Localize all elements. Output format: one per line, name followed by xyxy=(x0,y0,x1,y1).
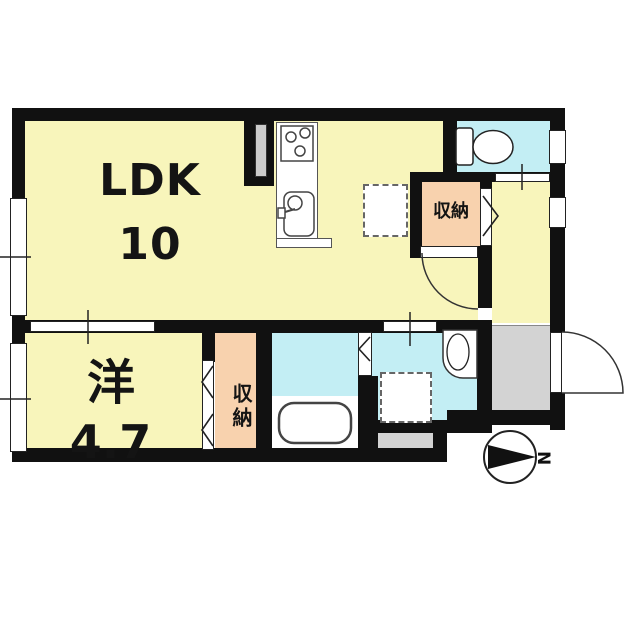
wall-entry-bottom xyxy=(447,410,565,425)
door-toilet-gap xyxy=(495,173,550,182)
bathroom-door xyxy=(358,332,372,376)
storage-bottom-door xyxy=(202,360,214,450)
wall-top xyxy=(12,108,565,121)
storage-bottom-label: 収納 xyxy=(223,357,251,457)
storage-top-label: 収納 xyxy=(422,203,480,222)
wall-storage-bottom-top xyxy=(202,333,215,362)
wall-wash-entry xyxy=(477,325,492,420)
entry-step xyxy=(378,433,433,448)
washer-space xyxy=(380,372,432,423)
window-hallway-right xyxy=(549,197,566,228)
hallway-floor xyxy=(492,182,550,323)
door-washroom-gap xyxy=(383,321,437,332)
window-toilet-right xyxy=(549,130,566,164)
door-arc-entrance xyxy=(562,332,623,393)
compass-north-label: N xyxy=(533,451,553,465)
entry-floor xyxy=(492,325,550,410)
window-ldk-left xyxy=(10,198,27,316)
refrigerator-space xyxy=(363,184,408,237)
wall-step-right xyxy=(433,433,447,462)
door-ldk-hallway-gap xyxy=(420,246,478,258)
storage-top-door xyxy=(480,188,492,246)
wall-bath-left xyxy=(256,320,272,448)
ldk-label: LDK xyxy=(80,158,220,204)
floor-plan: N LDK 10 洋 4.7 収納 収納 xyxy=(0,0,640,640)
wall-bath-wash-lower xyxy=(358,376,378,462)
compass-icon: N xyxy=(484,431,553,483)
opening-ldk-western xyxy=(30,321,155,332)
kitchen-counter-base xyxy=(276,238,332,248)
bathtub-area xyxy=(272,396,358,448)
window-western-left xyxy=(10,343,27,452)
bathroom-floor xyxy=(272,330,358,396)
kitchen-counter xyxy=(276,122,318,247)
kitchen-partition xyxy=(255,124,267,177)
entrance-door-leaf xyxy=(550,332,562,393)
gap-hallway-wall xyxy=(478,308,492,320)
ldk-size-label: 10 xyxy=(80,222,220,268)
western-room-label: 洋 xyxy=(61,358,161,408)
toilet-room-floor xyxy=(457,121,550,172)
western-room-size-label: 4.7 xyxy=(48,418,173,466)
